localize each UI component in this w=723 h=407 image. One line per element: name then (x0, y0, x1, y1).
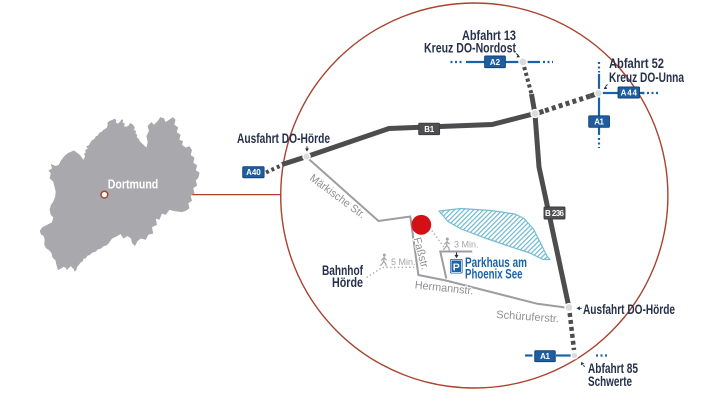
svg-text:A1: A1 (540, 352, 550, 361)
svg-text:Ausfahrt DO-Hörde: Ausfahrt DO-Hörde (583, 302, 675, 317)
svg-text:3 Min.: 3 Min. (454, 240, 479, 250)
svg-text:Schwerte: Schwerte (588, 374, 632, 389)
svg-text:B1: B1 (424, 125, 435, 134)
svg-text:Phoenix See: Phoenix See (465, 267, 523, 282)
svg-text:B 236: B 236 (545, 209, 565, 218)
svg-text:5 Min.: 5 Min. (391, 257, 416, 267)
svg-text:Hörde: Hörde (332, 275, 363, 290)
svg-text:Ausfahrt DO-Hörde: Ausfahrt DO-Hörde (237, 131, 330, 146)
svg-text:A44: A44 (621, 88, 638, 97)
svg-text:Kreuz DO-Nordost: Kreuz DO-Nordost (424, 40, 516, 55)
svg-text:Kreuz DO-Unna: Kreuz DO-Unna (609, 70, 684, 85)
svg-text:A1: A1 (594, 118, 604, 127)
svg-text:Abfahrt 52: Abfahrt 52 (609, 56, 664, 71)
svg-text:A40: A40 (246, 168, 261, 177)
svg-text:P: P (453, 262, 460, 274)
svg-text:Dortmund: Dortmund (108, 177, 159, 192)
svg-text:A2: A2 (490, 58, 501, 67)
